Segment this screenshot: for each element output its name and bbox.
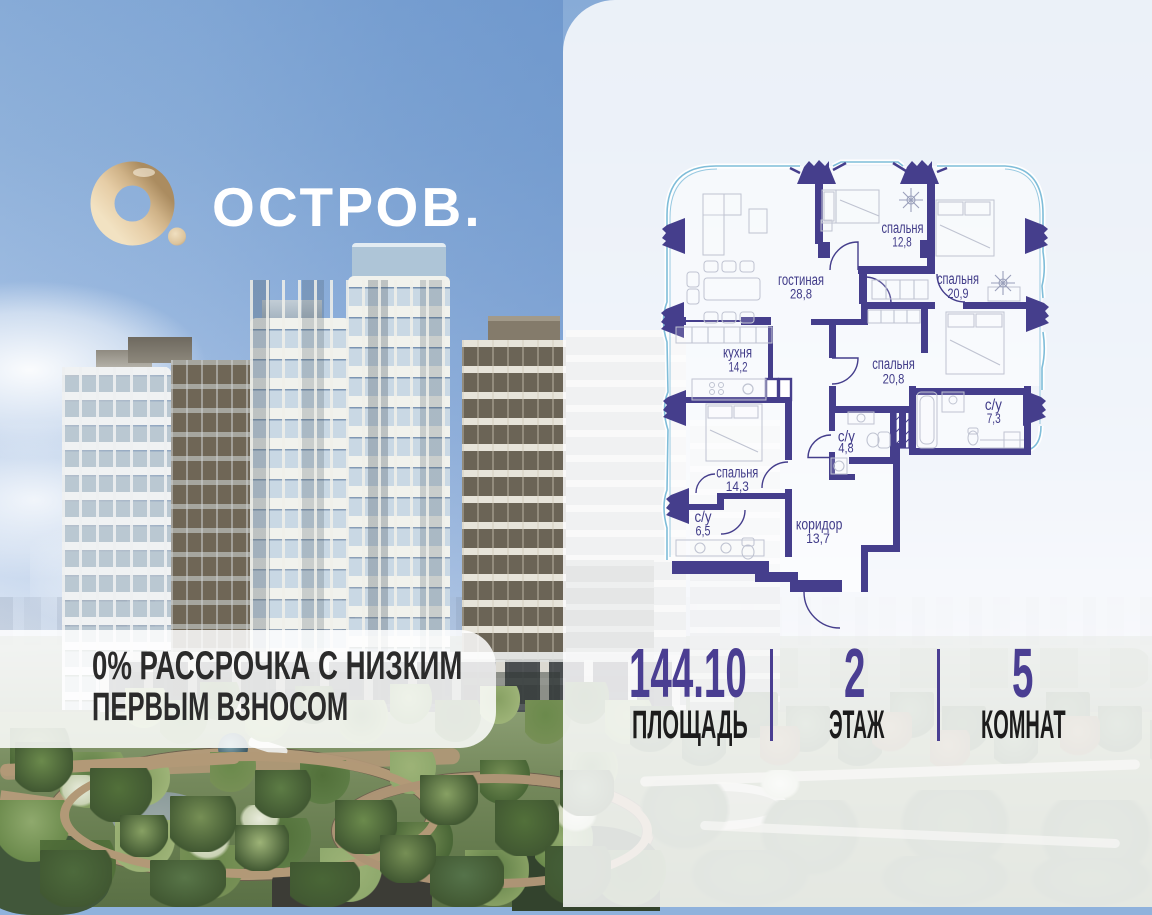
svg-text:20,9: 20,9 [948,286,969,301]
svg-text:20,8: 20,8 [883,371,905,386]
svg-text:28,8: 28,8 [790,287,812,302]
svg-text:14,3: 14,3 [726,479,749,494]
svg-text:12,8: 12,8 [892,235,912,250]
svg-text:4,8: 4,8 [838,441,853,456]
svg-text:13,7: 13,7 [806,531,830,546]
svg-text:14,2: 14,2 [729,359,748,374]
svg-text:6,5: 6,5 [696,524,711,539]
svg-text:7,3: 7,3 [987,411,1001,426]
